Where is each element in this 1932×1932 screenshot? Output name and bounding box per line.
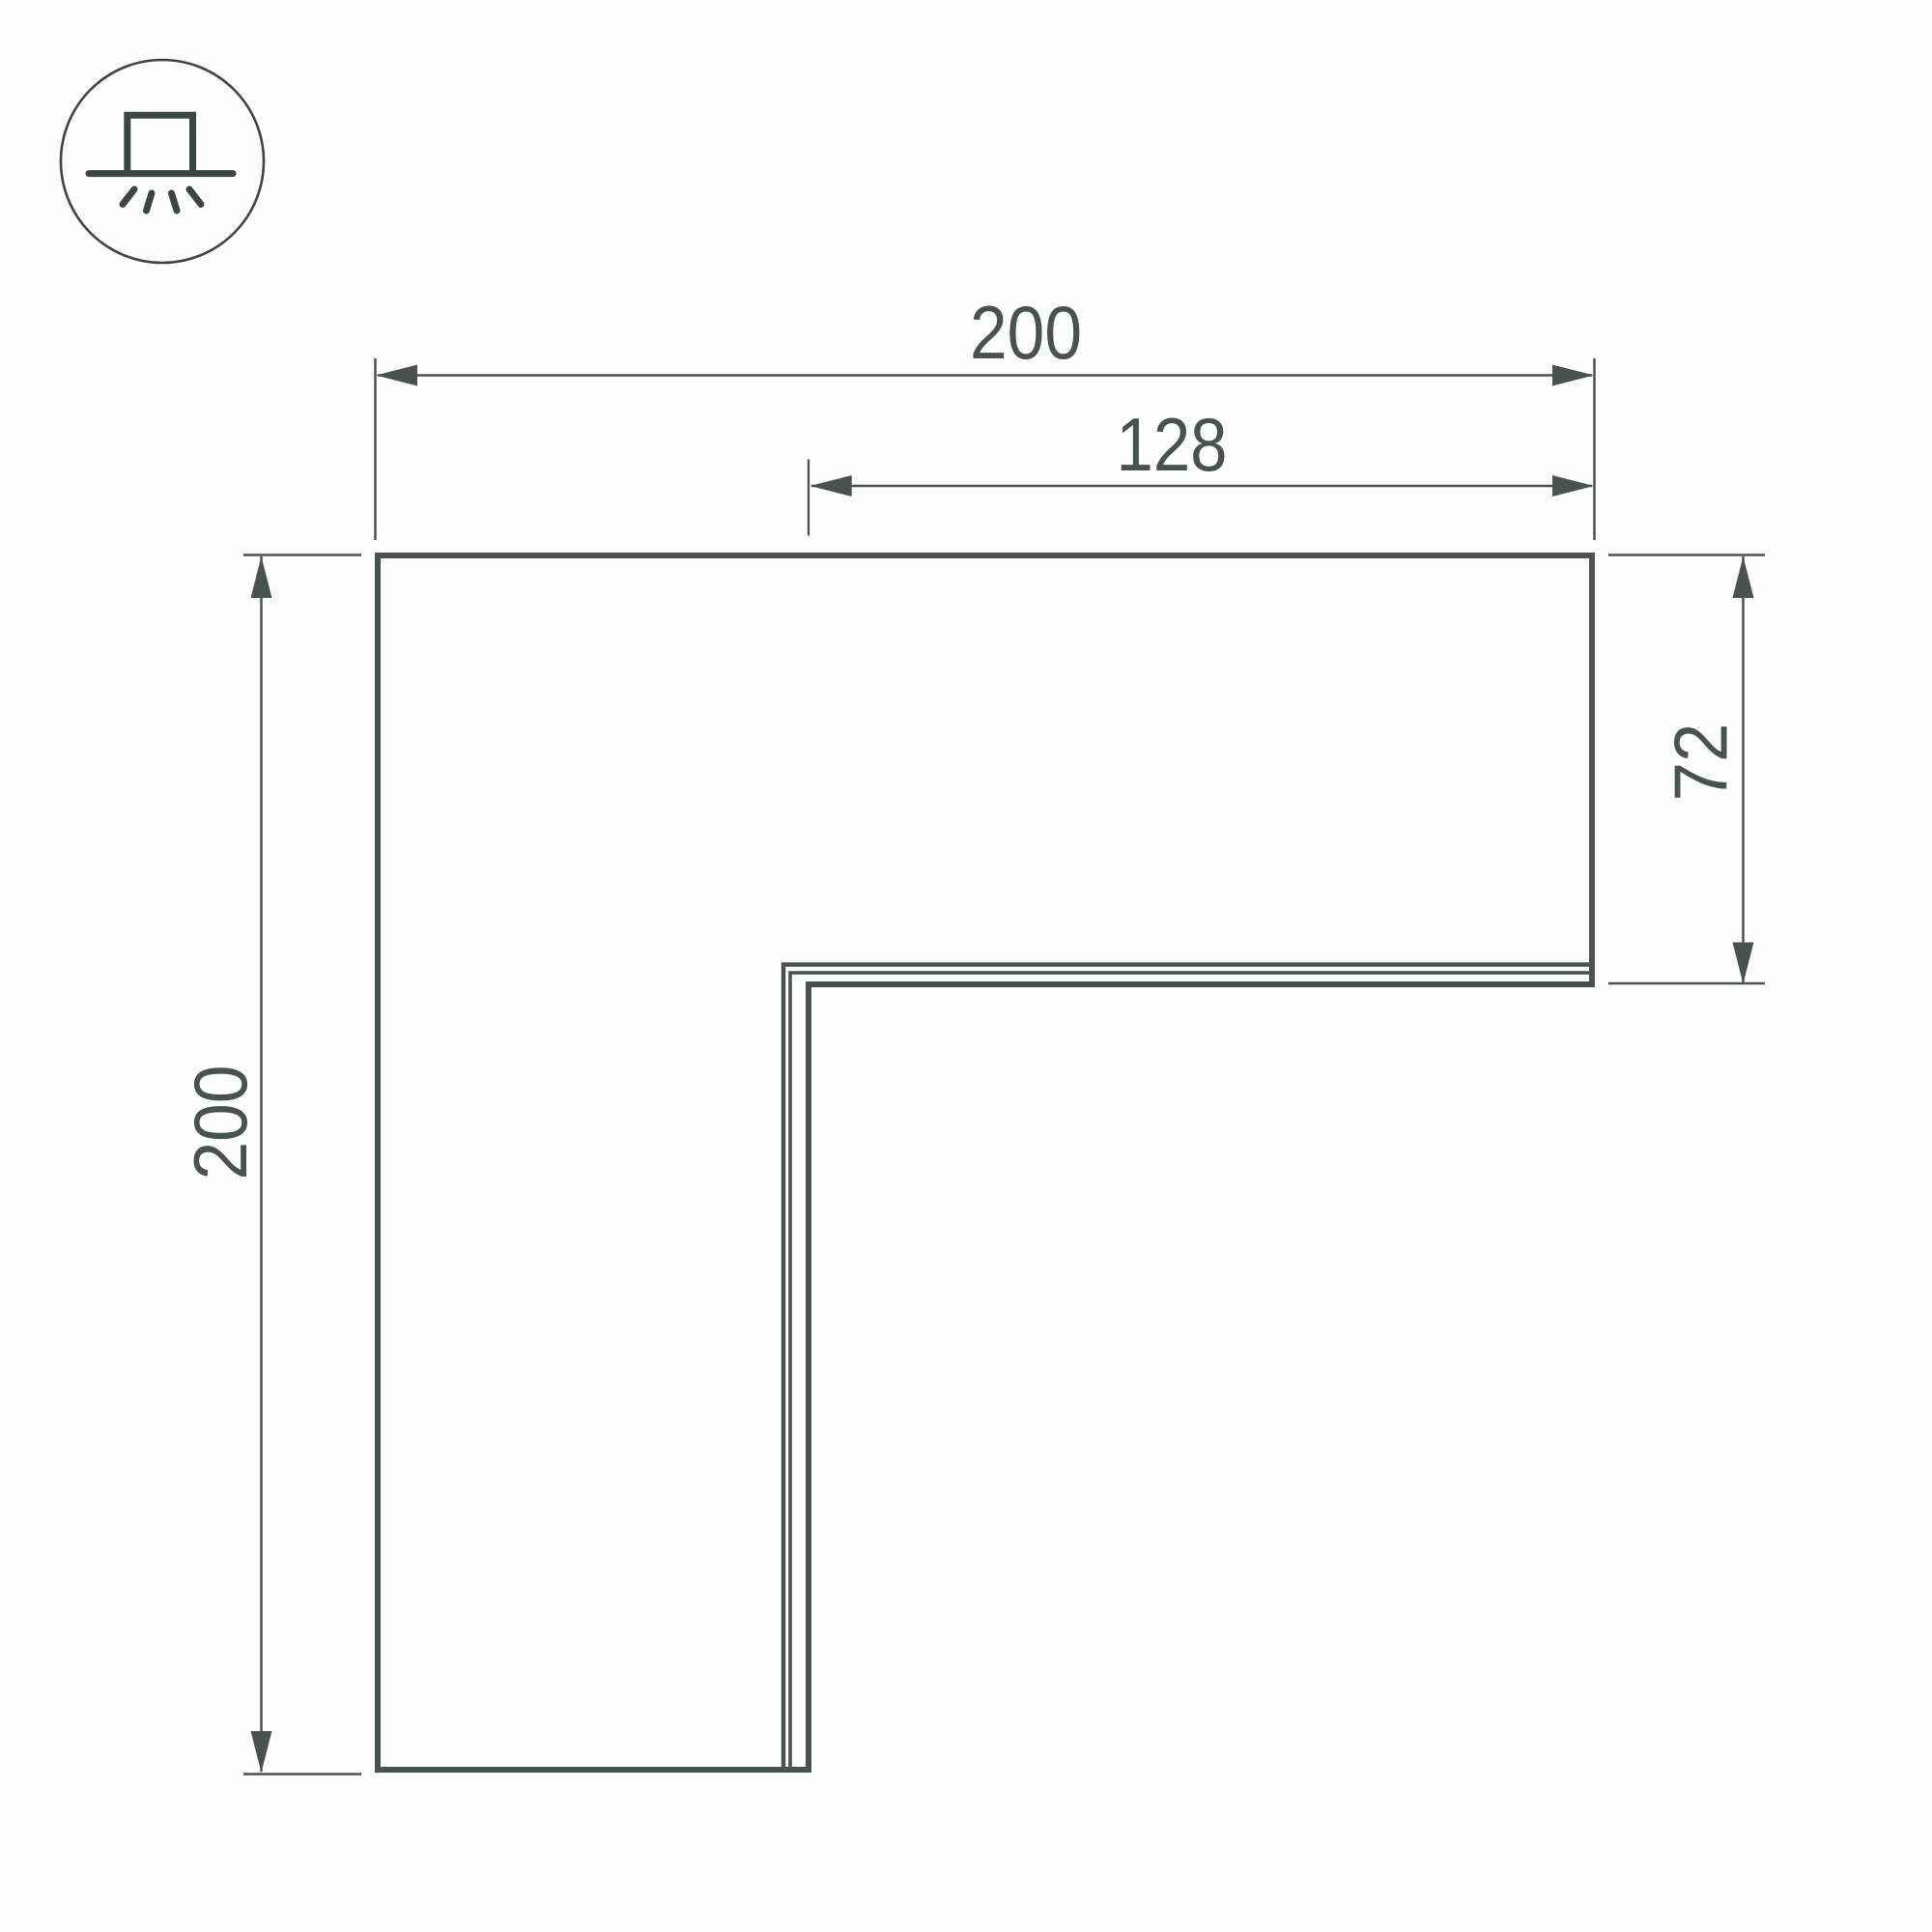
svg-text:128: 128	[1117, 402, 1228, 487]
svg-text:72: 72	[1659, 724, 1744, 802]
svg-text:200: 200	[178, 1065, 263, 1180]
svg-text:200: 200	[970, 290, 1082, 375]
